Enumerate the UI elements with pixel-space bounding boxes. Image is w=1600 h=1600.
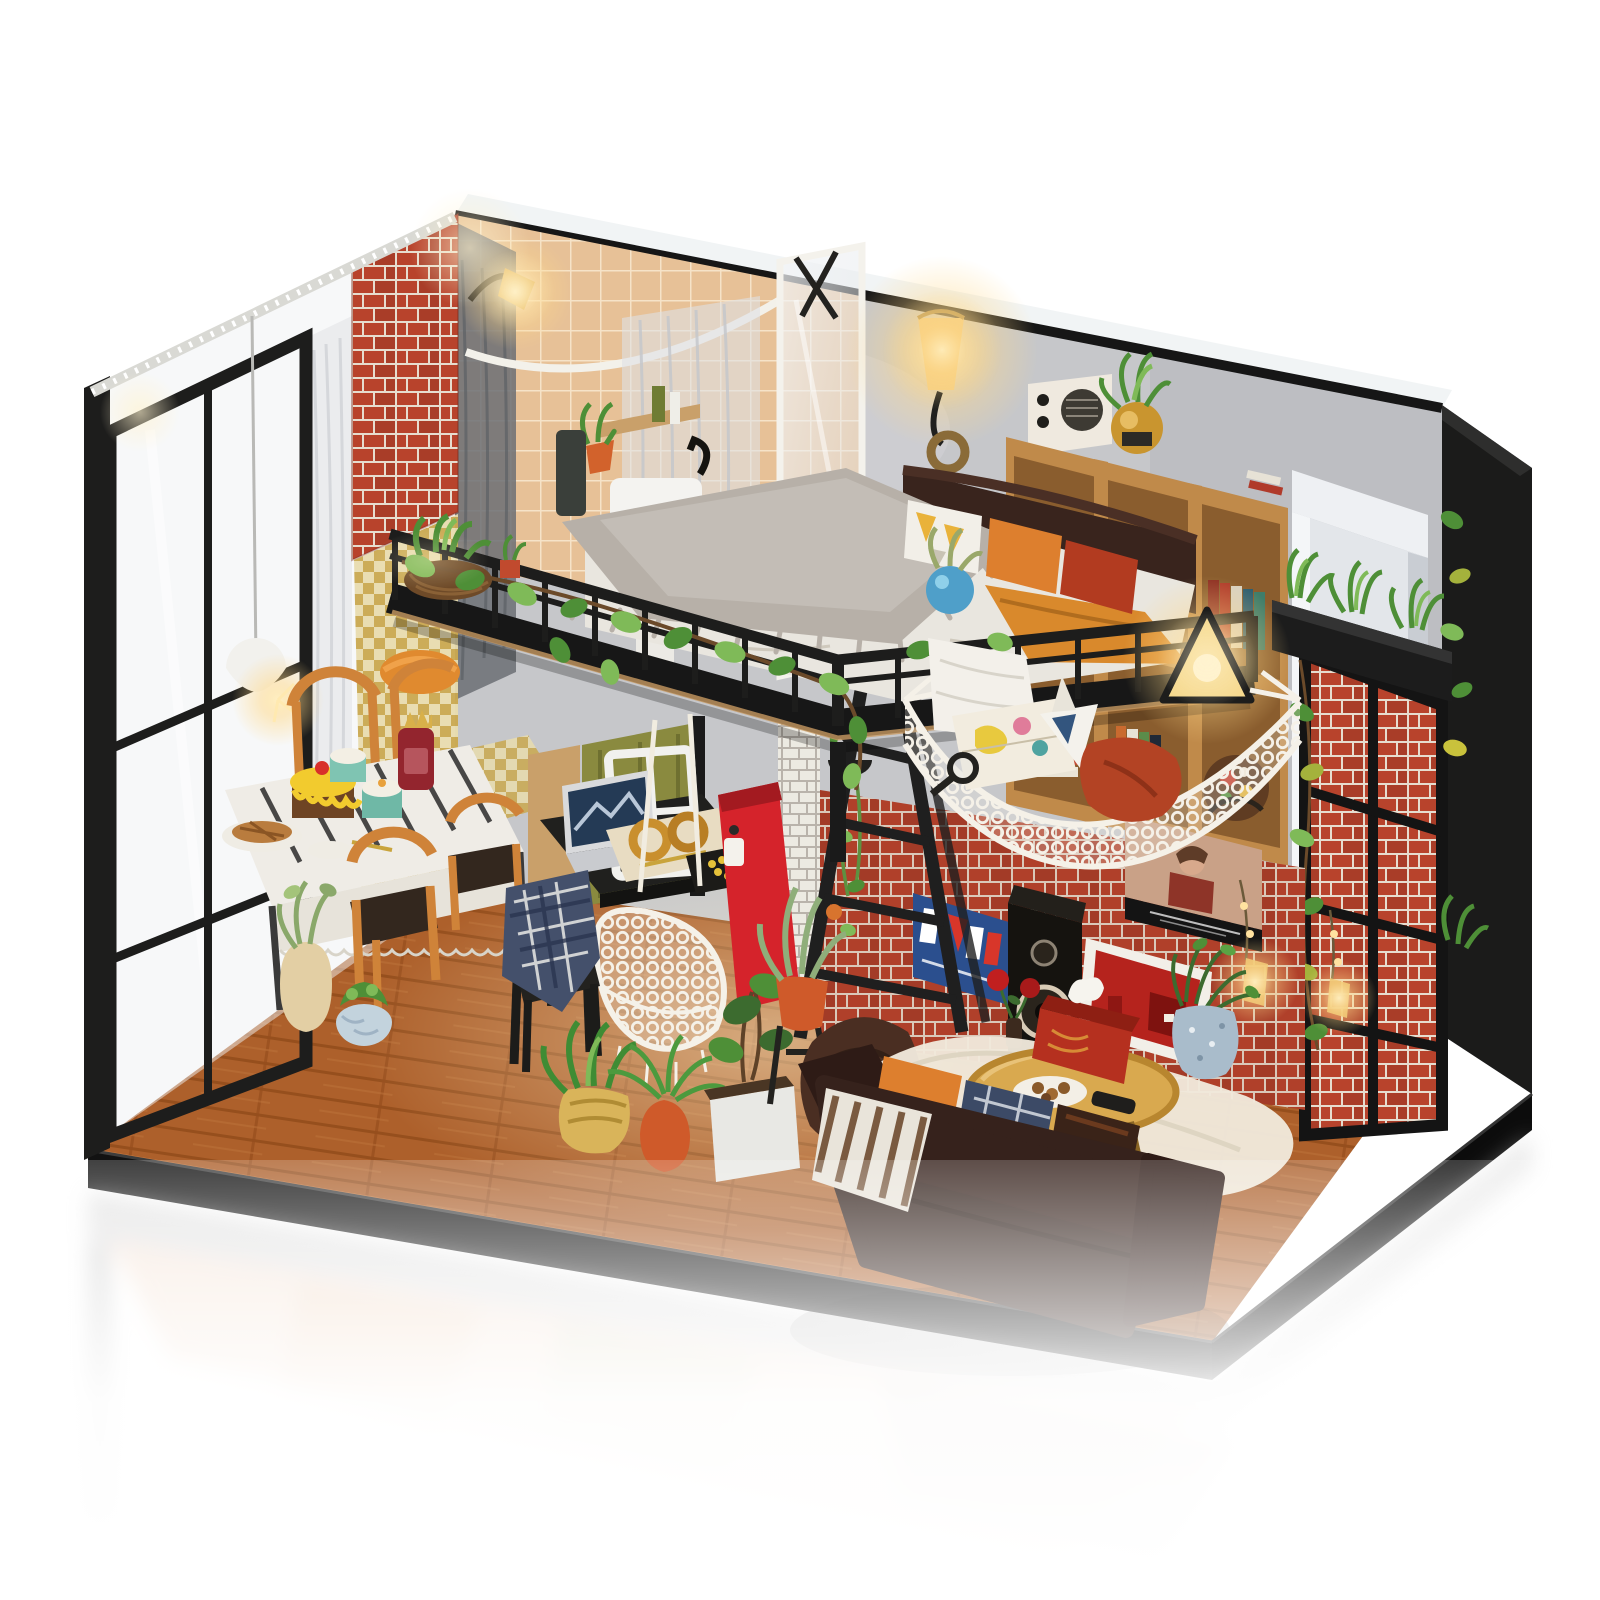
dollhouse-photo xyxy=(0,0,1600,1600)
radio xyxy=(1028,374,1112,456)
reflection-fade xyxy=(0,1160,1600,1600)
right-window-lattice xyxy=(1305,655,1442,1135)
